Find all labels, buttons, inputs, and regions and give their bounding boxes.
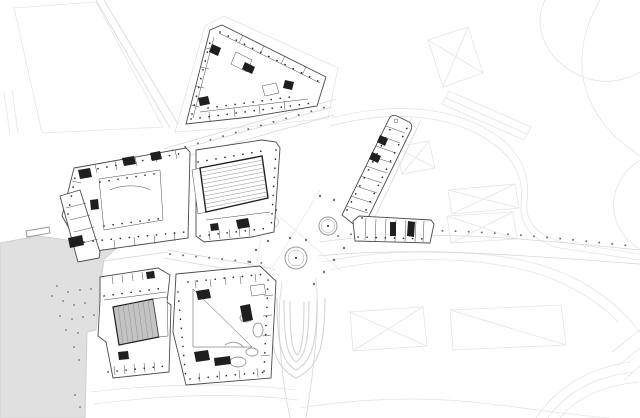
block-concert-hall xyxy=(192,140,280,242)
site-plan-screenshot xyxy=(0,0,640,418)
site-plan-canvas xyxy=(0,0,640,418)
block-south-courtyard xyxy=(173,266,276,385)
block-f-fan-seating xyxy=(113,299,159,345)
block-b-courtyard xyxy=(99,170,163,230)
